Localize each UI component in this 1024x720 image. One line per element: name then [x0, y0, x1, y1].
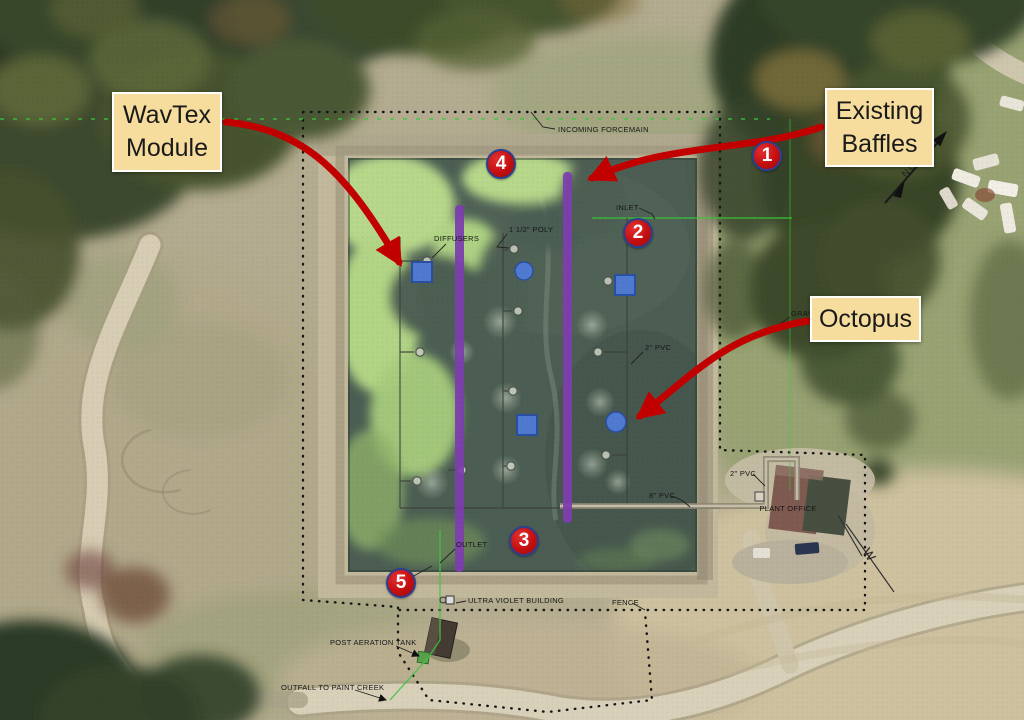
label-fence: FENCE [612, 598, 639, 607]
label-outlet: OUTLET [456, 540, 488, 549]
label-pvc2-office: 2" PVC [730, 469, 756, 478]
label-pvc8: 8" PVC [649, 491, 675, 500]
marker-3: 3 [509, 526, 539, 556]
uv-symbol [440, 596, 454, 604]
octopus-unit [515, 262, 533, 280]
annotated-aerial-site-plan: INCOMING FORCEMAIN INLET DIFFUSERS 1 1/2… [0, 0, 1024, 720]
callout-baffles-line2: Baffles [842, 128, 918, 161]
marker-1: 1 [752, 141, 782, 171]
baffle-left [455, 205, 464, 572]
label-plant-office: PLANT OFFICE [759, 504, 816, 513]
callout-octopus-label: Octopus [819, 303, 912, 336]
callout-octopus: Octopus [810, 296, 921, 342]
module-square [615, 275, 635, 295]
marker-2: 2 [623, 218, 653, 248]
callout-baffles-line1: Existing [836, 95, 924, 128]
label-incoming-forcemain: INCOMING FORCEMAIN [558, 125, 649, 134]
label-uv-building: ULTRA VIOLET BUILDING [468, 596, 564, 605]
label-pvc2-lagoon: 2" PVC [645, 343, 671, 352]
octopus-unit [606, 412, 626, 432]
callout-existing-baffles: Existing Baffles [825, 88, 934, 167]
callout-wavtex-module: WavTex Module [112, 92, 222, 172]
module-square [412, 262, 432, 282]
marker-5: 5 [386, 568, 416, 598]
label-post-aeration: POST AERATION TANK [330, 638, 417, 647]
callout-wavtex-line2: Module [126, 132, 208, 165]
parked-car [795, 542, 820, 555]
module-square [517, 415, 537, 435]
marker-4: 4 [486, 149, 516, 179]
callout-wavtex-line1: WavTex [123, 99, 211, 132]
baffle-right [563, 172, 572, 523]
label-diffusers: DIFFUSERS [434, 234, 479, 243]
label-inlet: INLET [616, 203, 639, 212]
label-poly: 1 1/2" POLY [509, 225, 553, 234]
label-outfall: OUTFALL TO PAINT CREEK [281, 683, 384, 692]
